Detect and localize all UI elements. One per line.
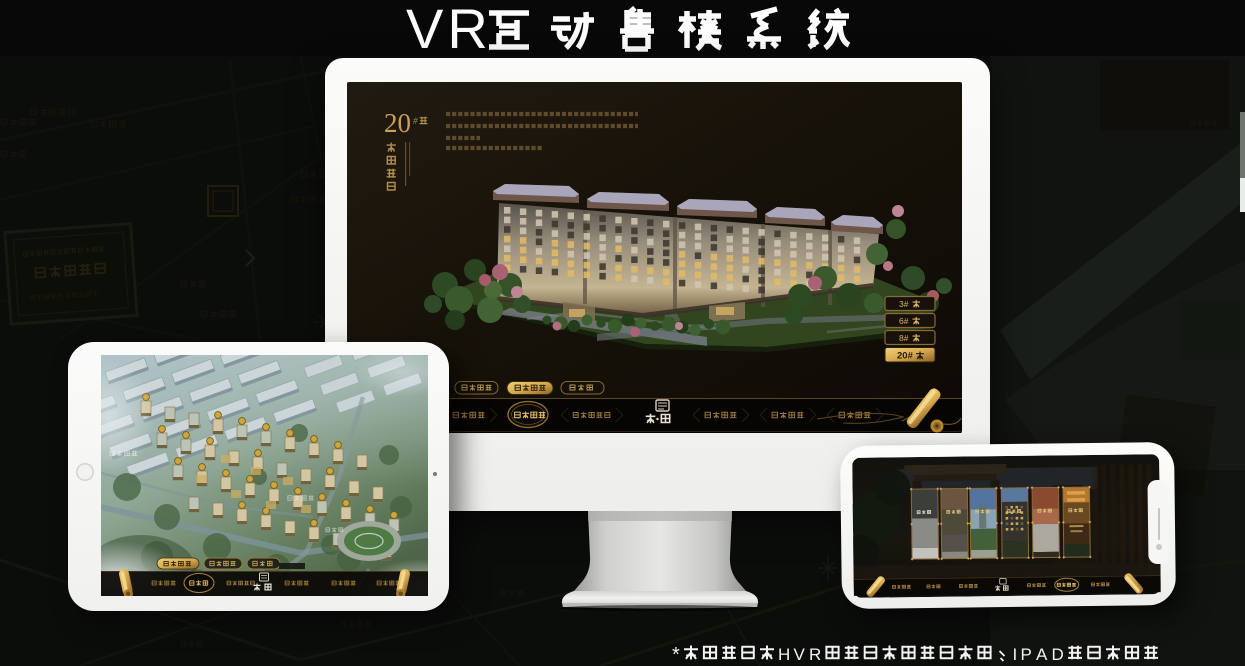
svg-text:VR: VR [406,0,492,60]
svg-text:20#: 20# [897,351,914,362]
svg-text:I: I [1013,645,1018,664]
svg-text:A: A [1036,645,1048,664]
svg-text:D: D [1052,645,1064,664]
svg-text:*: * [672,644,680,666]
svg-text:3#: 3# [899,299,909,309]
svg-text:H: H [778,645,790,664]
svg-text:V: V [794,645,806,664]
svg-text:6#: 6# [899,316,909,326]
svg-text:P: P [1021,645,1032,664]
svg-text:R: R [809,645,821,664]
svg-text:#: # [413,116,418,126]
svg-text:8#: 8# [899,333,909,343]
svg-text:20: 20 [384,108,411,138]
